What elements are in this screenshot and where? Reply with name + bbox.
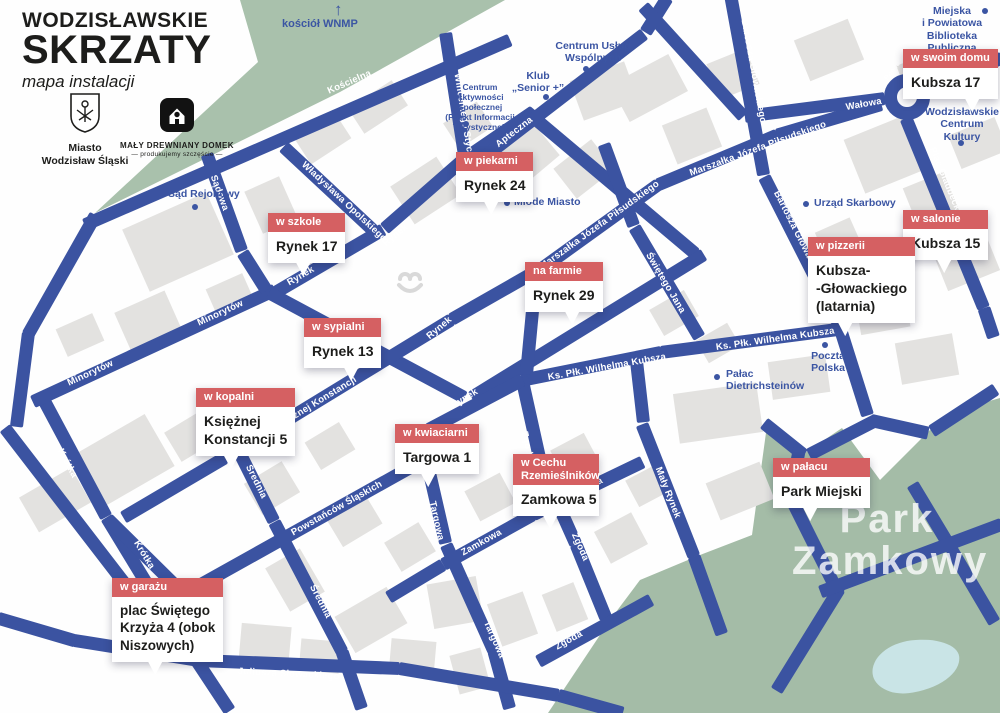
poi-centrum-uslug: Centrum UsługWspólnych bbox=[548, 40, 638, 65]
poi-dot bbox=[958, 140, 964, 146]
callout-pointer bbox=[540, 514, 557, 531]
callout-pointer bbox=[221, 453, 238, 470]
road bbox=[978, 306, 1000, 340]
callout-tag: w garażu bbox=[112, 578, 223, 597]
callout-text: (latarnia) bbox=[816, 297, 907, 315]
mdd-logo-tagline: — produkujemy szczęście — bbox=[112, 151, 242, 158]
map-canvas: Kościelna Sądowa Władysława Opolskiego W… bbox=[0, 0, 1000, 713]
road-srednia bbox=[336, 649, 368, 711]
street-label: Marszałka Józefa Piłsudskiego bbox=[538, 178, 662, 272]
poi-wck: WodzisławskieCentrumKultury bbox=[922, 106, 1000, 143]
callout-w-salonie[interactable]: w salonie Kubsza 15 bbox=[903, 210, 988, 260]
callout-text: Krzyża 4 (obok bbox=[120, 619, 215, 637]
city-crest-icon bbox=[69, 92, 101, 134]
callout-tag: w Cechu Rzemieślników bbox=[513, 454, 599, 485]
callout-tag: w pałacu bbox=[773, 458, 870, 477]
house-icon bbox=[160, 98, 194, 132]
callout-pointer bbox=[481, 199, 498, 216]
callout-pointer bbox=[145, 659, 162, 676]
building bbox=[594, 512, 648, 564]
callout-pointer bbox=[962, 96, 979, 113]
callout-text: Targowa 1 bbox=[403, 448, 471, 466]
callout-tag: w sypialni bbox=[304, 318, 381, 337]
callout-na-farmie[interactable]: na farmie Rynek 29 bbox=[525, 262, 603, 312]
callout-w-pizzerii[interactable]: w pizzerii Kubsza- -Głowackiego (latarni… bbox=[808, 237, 915, 323]
callout-text: Kubsza- bbox=[816, 261, 907, 279]
market-square-fountain-icon bbox=[392, 266, 428, 298]
road bbox=[10, 332, 35, 428]
callout-text: Kubsza 17 bbox=[911, 73, 990, 91]
callout-pointer bbox=[934, 257, 951, 274]
building bbox=[384, 522, 436, 572]
callout-tag: w szkole bbox=[268, 213, 345, 232]
poi-dot bbox=[982, 8, 988, 14]
callout-w-palacu[interactable]: w pałacu Park Miejski bbox=[773, 458, 870, 508]
road bbox=[0, 612, 78, 647]
callout-pointer bbox=[562, 309, 579, 326]
callout-pointer bbox=[418, 471, 435, 488]
callout-text: Zamkowa 5 bbox=[521, 490, 591, 508]
building bbox=[542, 582, 589, 632]
callout-w-kwiaciarni[interactable]: w kwiaciarni Targowa 1 bbox=[395, 424, 479, 474]
callout-w-cechu[interactable]: w Cechu Rzemieślników Zamkowa 5 bbox=[513, 454, 599, 516]
park-zamkowy-label: ParkZamkowy bbox=[792, 498, 982, 582]
poi-dot bbox=[463, 121, 469, 127]
poi-dot bbox=[822, 342, 828, 348]
poi-kosciol-wnmp: kościół WNMP bbox=[282, 18, 358, 31]
map-title: WODZISŁAWSKIE SKRZATY mapa instalacji bbox=[22, 10, 211, 92]
poi-urzad-skarbowy: Urząd Skarbowy bbox=[814, 197, 896, 209]
title-line2: SKRZATY bbox=[22, 31, 211, 69]
callout-tag: w kwiaciarni bbox=[395, 424, 479, 443]
mdd-logo: MAŁY DREWNIANY DOMEK — produkujemy szczę… bbox=[112, 98, 242, 158]
poi-palac-dietrichsteinow: PałacDietrichsteinów bbox=[726, 368, 816, 393]
callout-text: Rynek 13 bbox=[312, 342, 373, 360]
callout-w-szkole[interactable]: w szkole Rynek 17 bbox=[268, 213, 345, 263]
callout-text: Rynek 17 bbox=[276, 237, 337, 255]
callout-tag: w swoim domu bbox=[903, 49, 998, 68]
poi-sad-rejonowy: Sąd Rejonowy bbox=[168, 188, 240, 200]
callout-text: Kubsza 15 bbox=[911, 234, 980, 252]
poi-dot bbox=[583, 66, 589, 72]
callout-w-kopalni[interactable]: w kopalni Księżnej Konstancji 5 bbox=[196, 388, 295, 456]
building bbox=[305, 422, 356, 470]
poi-biblioteka: Miejskai PowiatowaBibliotekaPubliczna bbox=[916, 5, 988, 55]
callout-text: Rynek 24 bbox=[464, 176, 525, 194]
callout-text: Niszowych) bbox=[120, 637, 215, 655]
callout-w-sypialni[interactable]: w sypialni Rynek 13 bbox=[304, 318, 381, 368]
map-subtitle: mapa instalacji bbox=[22, 72, 211, 92]
callout-text: Rynek 29 bbox=[533, 286, 595, 304]
callout-w-piekarni[interactable]: w piekarni Rynek 24 bbox=[456, 152, 533, 202]
poi-dot bbox=[192, 204, 198, 210]
callout-text: Konstancji 5 bbox=[204, 430, 287, 448]
building bbox=[895, 333, 959, 384]
building bbox=[464, 473, 515, 522]
poi-centrum-aktywnosci: CentrumAktywnościSpołecznej(Punkt Inform… bbox=[428, 82, 532, 132]
street-label: Ks. Płk. Wilhelma Kubsza bbox=[715, 325, 835, 353]
callout-pointer bbox=[341, 365, 358, 382]
church-arrow-icon: ↑ bbox=[334, 0, 343, 20]
poi-dot bbox=[714, 374, 720, 380]
callout-text: -Głowackiego bbox=[816, 279, 907, 297]
callout-text: Park Miejski bbox=[781, 482, 862, 500]
callout-w-garazu[interactable]: w garażu plac Świętego Krzyża 4 (obok Ni… bbox=[112, 578, 223, 662]
street-label: Zamkowa bbox=[459, 527, 503, 558]
callout-tag: w salonie bbox=[903, 210, 988, 229]
callout-pointer bbox=[293, 260, 310, 277]
building bbox=[794, 19, 864, 82]
callout-w-swoim-domu[interactable]: w swoim domu Kubsza 17 bbox=[903, 49, 998, 99]
road bbox=[869, 414, 929, 440]
building bbox=[56, 313, 105, 357]
callout-tag: w kopalni bbox=[196, 388, 295, 407]
callout-pointer bbox=[835, 320, 852, 337]
poi-dot bbox=[543, 94, 549, 100]
callout-tag: na farmie bbox=[525, 262, 603, 281]
callout-pointer bbox=[800, 505, 817, 522]
callout-text: plac Świętego bbox=[120, 602, 215, 620]
callout-tag: w pizzerii bbox=[808, 237, 915, 256]
poi-dot bbox=[803, 201, 809, 207]
callout-text: Księżnej bbox=[204, 412, 287, 430]
callout-tag: w piekarni bbox=[456, 152, 533, 171]
mdd-logo-name: MAŁY DREWNIANY DOMEK bbox=[112, 141, 242, 150]
